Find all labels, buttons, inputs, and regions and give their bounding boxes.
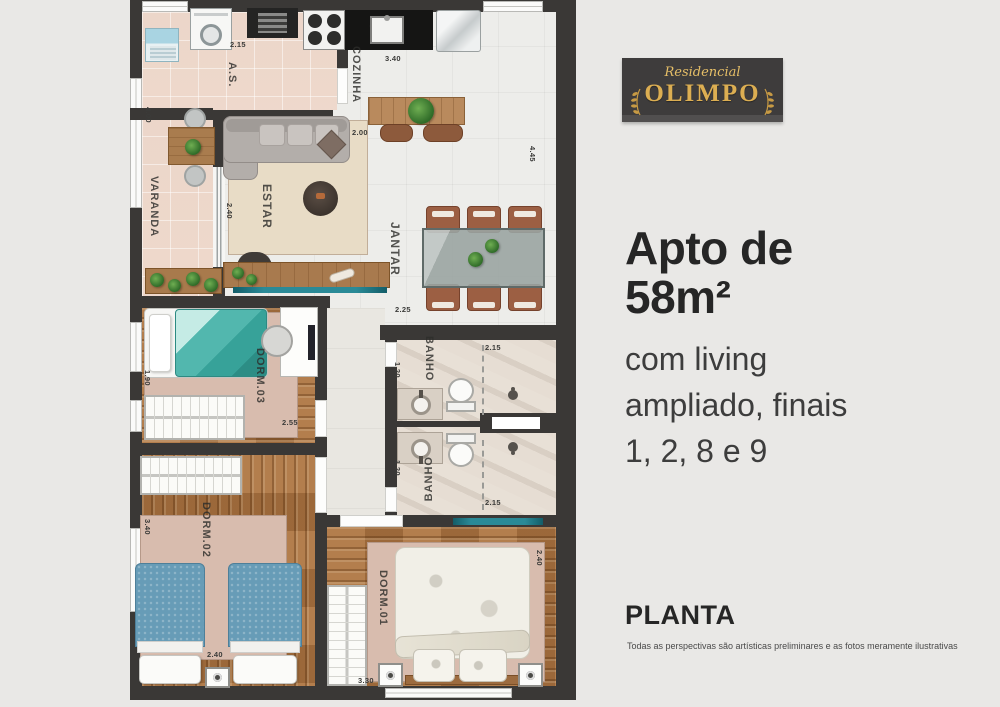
flyer: VARANDA A.S. COZINHA ESTAR JANTAR DORM.0…: [0, 0, 1000, 707]
built-in-oven: [247, 8, 298, 38]
brand-script: Residencial: [622, 65, 783, 80]
door-dorm3: [315, 400, 327, 437]
label-estar: ESTAR: [260, 184, 274, 229]
laundry-tank: [145, 28, 179, 62]
sliding-door-varanda: [213, 167, 225, 267]
wall-dorm1-top-a: [327, 515, 340, 527]
label-banho-sup: BANHO: [423, 336, 435, 381]
dim-jantar: 2.25: [395, 305, 411, 314]
fridge: [436, 10, 481, 52]
dim-dorm3-height: 1.90: [143, 370, 152, 386]
floor-hall: [327, 308, 385, 515]
stool: [423, 124, 463, 142]
dorm1-nightstand: [378, 663, 403, 687]
dim-dorm1-height: 2.40: [535, 550, 544, 566]
kitchen-counter: [345, 10, 433, 50]
label-dorm2: DORM.02: [200, 502, 212, 558]
dorm1-tv: [453, 518, 543, 525]
dorm2-bed: [228, 563, 302, 686]
label-dorm1: DORM.01: [377, 570, 389, 626]
window-varanda: [130, 78, 142, 208]
wall-dorm3-dorm2: [130, 443, 327, 455]
banho-inf-shower-glass: [482, 440, 484, 510]
banho-inf-shower-head: [508, 442, 518, 452]
label-dorm3: DORM.03: [254, 348, 266, 404]
varanda-chair: [184, 165, 206, 187]
shower-niche: [492, 417, 540, 429]
dim-estar-left: 2.40: [225, 203, 234, 219]
subheadline: com living ampliado, finais 1, 2, 8 e 9: [625, 336, 847, 474]
dorm2-wardrobe: [140, 456, 242, 495]
washing-machine: [190, 8, 232, 50]
banho-sup-toilet-tank: [446, 401, 476, 412]
banho-sup-vanity: [397, 388, 443, 420]
subheadline-line1: com living: [625, 336, 847, 382]
brand-name: OLIMPO: [622, 80, 783, 108]
wall-jantar-banho: [380, 325, 556, 340]
label-area-servico: A.S.: [226, 62, 238, 87]
dining-chair: [508, 284, 542, 311]
window-cozinha: [483, 1, 543, 12]
disclaimer-text: Todas as perspectivas são artísticas pre…: [627, 641, 972, 651]
window-dorm3-a: [130, 322, 142, 372]
door-banho-inf: [385, 487, 397, 512]
varanda-planter: [145, 268, 222, 294]
wall-dorm2-dorm1: [315, 513, 327, 690]
dim-cozinha-width: 3.40: [385, 54, 401, 63]
dorm2-nightstand: [205, 667, 230, 688]
banho-sup-shower-glass: [482, 345, 484, 415]
headline-line1: Apto de: [625, 224, 793, 273]
dining-table: [422, 228, 545, 288]
window-dorm1: [385, 688, 512, 698]
dining-chair: [467, 284, 501, 311]
dim-estar-top: 2.00: [352, 128, 368, 137]
banho-sup-toilet: [448, 378, 474, 403]
subheadline-line3: 1, 2, 8 e 9: [625, 428, 847, 474]
banho-sup-shower-head: [508, 390, 518, 400]
dim-dorm1-width: 3.30: [358, 676, 374, 685]
logo-strip: [622, 115, 783, 122]
door-dorm2: [315, 457, 327, 513]
label-banho-inf: BANHO: [423, 456, 435, 501]
section-title: PLANTA: [625, 600, 736, 631]
tv-sideboard: [223, 262, 390, 288]
dorm3-wardrobe: [144, 395, 245, 440]
dim-banho-inf-height: 1.20: [393, 460, 402, 476]
subheadline-line2: ampliado, finais: [625, 382, 847, 428]
wall-banho-divider-thick: [480, 413, 556, 433]
brand-logo: Residencial OLIMPO: [622, 58, 783, 122]
floor-plan: VARANDA A.S. COZINHA ESTAR JANTAR DORM.0…: [130, 0, 576, 700]
window-area-servico: [142, 1, 188, 12]
dim-as-width: 2.15: [230, 40, 246, 49]
wall-banho-divider: [397, 421, 480, 427]
dorm1-nightstand: [518, 663, 543, 687]
dorm1-bed: [395, 545, 530, 686]
island-plant: [408, 98, 434, 124]
banho-inf-vanity: [397, 432, 443, 464]
tv-screen: [233, 287, 387, 293]
dorm1-wardrobe: [327, 585, 367, 686]
window-dorm3-b: [130, 400, 142, 432]
dorm2-bed: [135, 563, 205, 686]
laurel-left-icon: [630, 88, 644, 116]
dim-dorm2-width: 2.40: [207, 650, 223, 659]
wall-right: [556, 0, 576, 700]
coffee-table: [303, 181, 338, 216]
label-varanda: VARANDA: [148, 176, 160, 237]
banho-inf-toilet: [448, 442, 474, 467]
dim-cozinha-height: 4.45: [528, 146, 537, 162]
headline: Apto de 58m²: [625, 224, 793, 322]
kitchen-sink: [370, 16, 404, 44]
dim-dorm2-height: 3.40: [143, 519, 152, 535]
dim-banho-sup-width: 2.15: [485, 343, 501, 352]
dorm3-bed: [144, 308, 268, 378]
label-jantar: JANTAR: [388, 222, 402, 276]
door-area-servico: [337, 68, 348, 104]
dim-banho-sup-height: 1.20: [393, 362, 402, 378]
door-dorm1: [340, 515, 403, 527]
varanda-table: [168, 127, 215, 165]
wall-banho-left-a: [385, 325, 397, 342]
laurel-right-icon: [761, 88, 775, 116]
dining-chair: [426, 284, 460, 311]
label-cozinha: COZINHA: [350, 46, 362, 103]
sofa: [223, 116, 350, 182]
dim-dorm3-width: 2.55: [282, 418, 298, 427]
dim-banho-inf-width: 2.15: [485, 498, 501, 507]
dim-varanda-height: 4.00: [144, 107, 153, 123]
headline-line2: 58m²: [625, 273, 793, 322]
stool: [380, 124, 413, 142]
cooktop-stove: [303, 10, 345, 50]
